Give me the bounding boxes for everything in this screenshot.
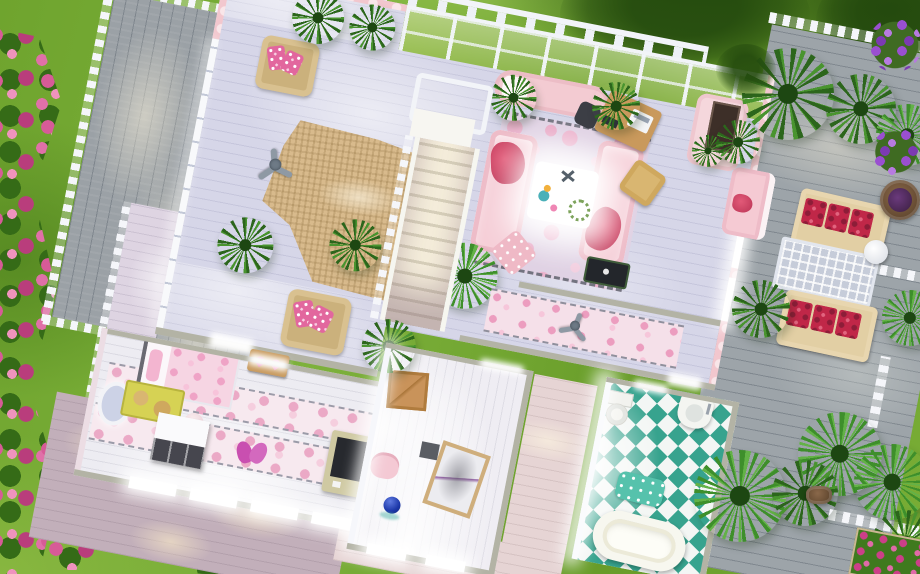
sink-basin [683, 402, 705, 424]
house-core [165, 0, 776, 390]
magenta-stool[interactable] [234, 434, 274, 474]
palm-pink-wall[interactable] [716, 120, 760, 164]
white-dresser[interactable] [150, 412, 210, 469]
round-white-table[interactable] [864, 240, 888, 264]
palm-veranda-mid[interactable] [732, 280, 790, 338]
tub-interior [599, 516, 679, 567]
toy-bear-head [543, 184, 551, 192]
wicker-armchair-sitting[interactable] [279, 288, 353, 357]
brass-round-mirror [132, 389, 150, 407]
faucet [706, 403, 712, 414]
wicker-armchair-sunroom[interactable] [254, 34, 321, 98]
stool-petal [246, 440, 270, 467]
potted-purple-hydrangea-2[interactable] [872, 128, 920, 176]
palm-sunroom-edge[interactable] [592, 82, 640, 130]
ceiling-fan-sitting[interactable] [252, 141, 299, 188]
violet-bloom [888, 188, 912, 212]
potted-purple-hydrangea[interactable] [868, 18, 920, 72]
fern-veranda-lower-2[interactable] [854, 444, 920, 520]
pink-pillow [145, 348, 164, 382]
pink-trinket[interactable] [550, 204, 558, 212]
red-accent [731, 193, 754, 214]
wreath[interactable] [566, 197, 592, 223]
stereo-dot [602, 268, 609, 275]
ceiling-fan-hall[interactable] [555, 306, 595, 346]
planter-pot-lower[interactable] [806, 486, 832, 504]
desk-white-knob [332, 481, 341, 488]
leaf-overhang-pink-wall [716, 44, 776, 96]
red-throw [491, 142, 526, 185]
railing-deck-left [41, 0, 115, 322]
potted-violet[interactable] [880, 180, 920, 220]
game-viewport [0, 0, 920, 574]
coffee-table[interactable] [526, 160, 600, 229]
cardboard-box[interactable] [386, 370, 429, 411]
